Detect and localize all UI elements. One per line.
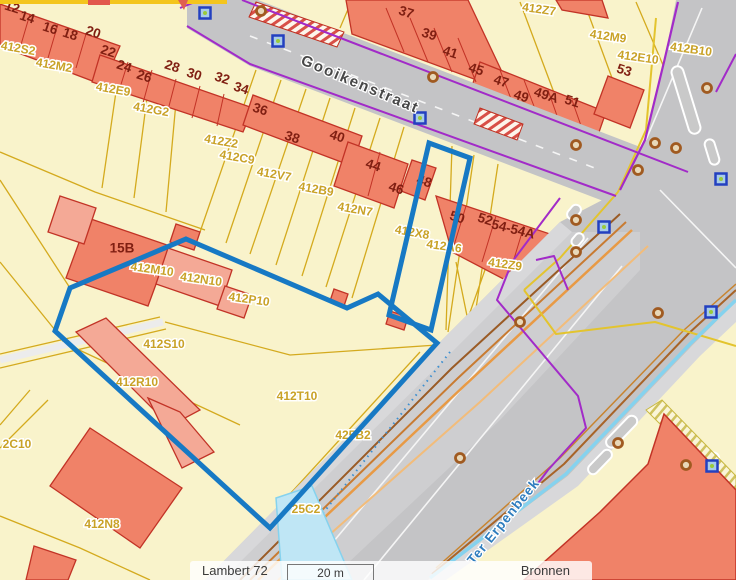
utility-marker-icon bbox=[200, 8, 211, 19]
utility-marker-icon bbox=[599, 222, 610, 233]
manhole-marker-icon bbox=[682, 461, 691, 470]
utility-marker-dot bbox=[602, 225, 606, 229]
manhole-marker-icon bbox=[572, 141, 581, 150]
utility-marker-dot bbox=[719, 177, 723, 181]
map-viewer: GooikenstraatTer Erpenbeek 412S2412M2412… bbox=[0, 0, 736, 580]
manhole-marker-icon bbox=[516, 318, 525, 327]
utility-marker-icon bbox=[706, 307, 717, 318]
utility-marker-dot bbox=[418, 116, 422, 120]
manhole-marker-icon bbox=[634, 166, 643, 175]
house-number-label: 15B bbox=[110, 241, 135, 256]
utility-marker-dot bbox=[709, 310, 713, 314]
parcel-label: 412R10 bbox=[116, 375, 158, 389]
projection-label: Lambert 72 bbox=[202, 563, 268, 578]
parcel-label: 25C2 bbox=[292, 502, 321, 516]
manhole-marker-icon bbox=[703, 84, 712, 93]
utility-marker-dot bbox=[710, 464, 714, 468]
manhole-marker-icon bbox=[614, 439, 623, 448]
manhole-marker-icon bbox=[672, 144, 681, 153]
sources-link[interactable]: Bronnen bbox=[521, 563, 570, 578]
scale-bar: 20 m bbox=[287, 564, 374, 580]
parcel-label: 412S10 bbox=[143, 337, 185, 351]
parcel-label: 2C10 bbox=[3, 437, 32, 451]
utility-marker-icon bbox=[716, 174, 727, 185]
manhole-marker-icon bbox=[572, 216, 581, 225]
map-canvas[interactable]: GooikenstraatTer Erpenbeek 412S2412M2412… bbox=[0, 0, 736, 580]
utility-marker-dot bbox=[276, 39, 280, 43]
manhole-marker-icon bbox=[456, 454, 465, 463]
utility-marker-dot bbox=[203, 11, 207, 15]
manhole-marker-icon bbox=[651, 139, 660, 148]
manhole-marker-icon bbox=[429, 73, 438, 82]
map-status-bar: Lambert 72 20 m Bronnen bbox=[190, 561, 592, 580]
parcel-label: 412T10 bbox=[277, 389, 318, 403]
scale-bar-label: 20 m bbox=[317, 566, 344, 580]
manhole-marker-icon bbox=[257, 7, 266, 16]
utility-marker-icon bbox=[707, 461, 718, 472]
manhole-marker-icon bbox=[572, 248, 581, 257]
manhole-marker-icon bbox=[654, 309, 663, 318]
parcel-label: 412N8 bbox=[84, 517, 120, 531]
utility-marker-icon bbox=[273, 36, 284, 47]
